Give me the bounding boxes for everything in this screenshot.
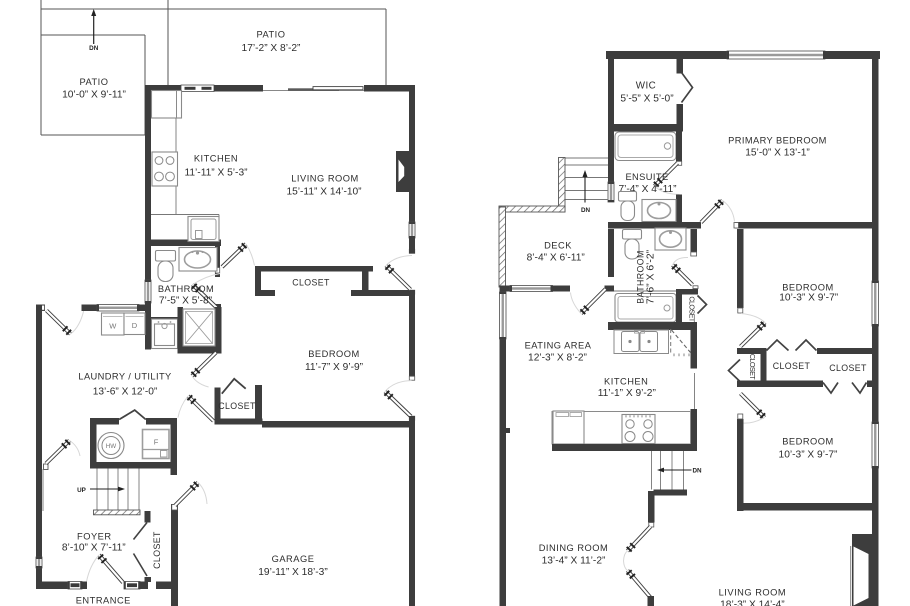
svg-text:8’-10” X 7’-11”: 8’-10” X 7’-11” xyxy=(62,543,126,554)
svg-text:GARAGE: GARAGE xyxy=(272,554,315,564)
svg-text:DN: DN xyxy=(89,45,99,52)
svg-text:BATHROOM: BATHROOM xyxy=(636,250,646,303)
svg-text:DN: DN xyxy=(581,207,591,214)
svg-text:KITCHEN: KITCHEN xyxy=(194,154,238,164)
svg-text:PATIO: PATIO xyxy=(256,30,285,40)
svg-text:11’-7” X 9’-9”: 11’-7” X 9’-9” xyxy=(305,362,364,373)
svg-text:CLOSET: CLOSET xyxy=(218,401,256,411)
svg-text:19’-11” X 18’-3”: 19’-11” X 18’-3” xyxy=(258,567,328,578)
svg-text:DN: DN xyxy=(692,468,702,475)
svg-text:PRIMARY BEDROOM: PRIMARY BEDROOM xyxy=(728,136,827,146)
svg-text:5’-5” X 5’-0”: 5’-5” X 5’-0” xyxy=(620,94,674,105)
svg-text:13’-6” X 12’-0”: 13’-6” X 12’-0” xyxy=(93,387,158,398)
svg-text:8’-4” X 6’-11”: 8’-4” X 6’-11” xyxy=(527,253,586,264)
svg-text:HW: HW xyxy=(106,443,117,450)
svg-text:FOYER: FOYER xyxy=(77,532,112,542)
svg-text:EATING AREA: EATING AREA xyxy=(525,341,592,351)
svg-text:ENTRANCE: ENTRANCE xyxy=(76,596,131,606)
svg-text:LIVING ROOM: LIVING ROOM xyxy=(719,588,787,598)
svg-text:WIC: WIC xyxy=(636,81,657,92)
svg-text:UP: UP xyxy=(77,487,86,494)
svg-text:CLOSET: CLOSET xyxy=(829,363,867,373)
svg-text:10’-0” X 9’-11”: 10’-0” X 9’-11” xyxy=(62,90,126,101)
svg-text:CLOSET: CLOSET xyxy=(152,531,162,569)
svg-text:18’-3” X 14’-4”: 18’-3” X 14’-4” xyxy=(720,600,785,606)
svg-text:DINING ROOM: DINING ROOM xyxy=(539,543,609,553)
svg-text:11’-11” X 5’-3”: 11’-11” X 5’-3” xyxy=(184,168,248,179)
svg-text:LAUNDRY / UTILITY: LAUNDRY / UTILITY xyxy=(78,372,171,382)
svg-text:LIVING ROOM: LIVING ROOM xyxy=(291,174,359,184)
svg-text:11’-1” X 9’-2”: 11’-1” X 9’-2” xyxy=(598,388,657,399)
svg-text:DECK: DECK xyxy=(544,241,572,251)
svg-text:BEDROOM: BEDROOM xyxy=(308,349,360,359)
svg-text:17’-2” X 8’-2”: 17’-2” X 8’-2” xyxy=(242,43,301,54)
svg-text:BATHROOM: BATHROOM xyxy=(158,284,214,294)
svg-text:15’-0” X 13’-1”: 15’-0” X 13’-1” xyxy=(745,148,810,159)
svg-text:13’-4” X 11’-2”: 13’-4” X 11’-2” xyxy=(542,556,606,567)
svg-text:CLOSET: CLOSET xyxy=(688,296,697,322)
svg-text:BEDROOM: BEDROOM xyxy=(782,283,834,293)
svg-text:D: D xyxy=(132,321,138,330)
svg-text:10’-3” X 9’-7”: 10’-3” X 9’-7” xyxy=(779,450,838,461)
svg-text:W: W xyxy=(109,322,117,331)
svg-text:7’-6” X 6’-2”: 7’-6” X 6’-2” xyxy=(646,249,657,304)
svg-text:F: F xyxy=(154,438,159,447)
svg-text:15’-11” X 14’-10”: 15’-11” X 14’-10” xyxy=(286,187,362,198)
svg-text:CLOSET: CLOSET xyxy=(748,354,757,380)
svg-text:10’-3” X 9’-7”: 10’-3” X 9’-7” xyxy=(779,293,838,304)
svg-text:12’-3” X 8’-2”: 12’-3” X 8’-2” xyxy=(528,353,587,364)
svg-text:PATIO: PATIO xyxy=(79,77,108,87)
svg-text:CLOSET: CLOSET xyxy=(773,361,811,371)
svg-text:KITCHEN: KITCHEN xyxy=(604,377,648,387)
svg-text:7’-5” X 5’-8”: 7’-5” X 5’-8” xyxy=(159,296,213,307)
svg-text:ENSUITE: ENSUITE xyxy=(625,172,668,182)
svg-text:BEDROOM: BEDROOM xyxy=(782,437,834,447)
svg-text:CLOSET: CLOSET xyxy=(292,278,330,288)
